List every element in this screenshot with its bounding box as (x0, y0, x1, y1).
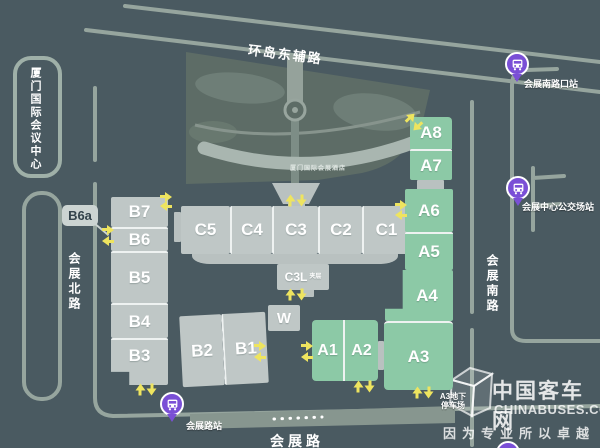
a3-parking-line2: 停车场 (433, 401, 473, 410)
hall-c5: C5 (181, 206, 230, 254)
entrance-arrow-icon (148, 384, 157, 396)
hall-a6: A6 (405, 189, 453, 232)
entrance-arrow-icon (354, 381, 363, 393)
hotel-label: 厦门国际会展酒店 (258, 163, 378, 172)
entrance-arrow-icon (254, 353, 266, 362)
watermark-domain: CHINABUSES.COM (494, 402, 600, 417)
road-label-right: 会展南路 (484, 254, 501, 314)
hall-b5: B5 (111, 251, 168, 303)
entrance-arrow-icon (366, 381, 375, 393)
entrance-arrow-icon (160, 192, 172, 201)
entrance-arrow-icon (136, 384, 145, 396)
road-label-left: 会展北路 (66, 252, 83, 312)
conference-center-label: 厦门国际会议中心 (27, 66, 43, 172)
hall-w: W (268, 305, 300, 331)
pin-pointer (512, 74, 522, 82)
bus-stop-south-road-label: 会展南路口站 (524, 77, 578, 90)
hall-c4: C4 (230, 206, 272, 254)
hall-a7: A7 (410, 149, 452, 180)
entrance-arrow-icon (301, 353, 313, 362)
hall-b6a-callout: B6a (62, 205, 98, 226)
hall-c2: C2 (318, 206, 362, 254)
entrance-arrow-icon (298, 195, 307, 207)
bus-stop-exhibition-road (160, 392, 184, 422)
hall-c3l: C3L 夹层 (277, 264, 329, 290)
bus-icon (160, 392, 184, 416)
bus-stop-center-terminal-label: 会展中心公交场站 (522, 200, 594, 213)
a3-parking-line1: A3地下 (433, 392, 473, 401)
c-hall-apron (192, 254, 398, 264)
hall-c3: C3 (272, 206, 318, 254)
road-label-bottom: 会展路 (270, 431, 324, 448)
pin-pointer (167, 414, 177, 422)
entrance-arrow-icon (301, 341, 313, 350)
hall-b2: B2 (179, 314, 225, 387)
entrance-arrow-icon (160, 202, 172, 211)
watermark-slogan: 因为专业所以卓越 (443, 423, 595, 442)
bus-stop-exhibition-road-label: 会展路站 (186, 419, 222, 432)
entrance-arrow-icon (286, 289, 295, 301)
entrance-arrow-icon (102, 225, 114, 234)
entrance-arrow-icon (102, 237, 114, 246)
hall-c3l-note: 夹层 (309, 274, 321, 280)
c-hall-left-step (174, 212, 181, 242)
entrance-arrow-icon (395, 211, 407, 220)
hall-a3: A3 (384, 321, 453, 390)
venue-map: 环岛东辅路 会展北路 会展南路 会展路 厦门国际会议中心 厦门国际会展酒店 B7… (0, 0, 600, 448)
hall-b4: B4 (111, 303, 168, 338)
entrance-arrow-icon (395, 200, 407, 209)
hall-c3l-label: C3L (285, 270, 308, 284)
entrance-arrow-icon (254, 341, 266, 350)
hall-a5: A5 (405, 232, 453, 270)
hall-b6: B6 (111, 227, 168, 251)
bus-icon (505, 52, 529, 76)
hall-a2: A2 (343, 320, 378, 381)
entrance-arrow-icon (286, 195, 295, 207)
entrance-arrow-icon (298, 289, 307, 301)
entrance-arrow-icon (413, 387, 422, 399)
a3-parking-label: A3地下 停车场 (433, 392, 473, 410)
bus-icon (506, 176, 530, 200)
hall-a1: A1 (312, 320, 343, 381)
